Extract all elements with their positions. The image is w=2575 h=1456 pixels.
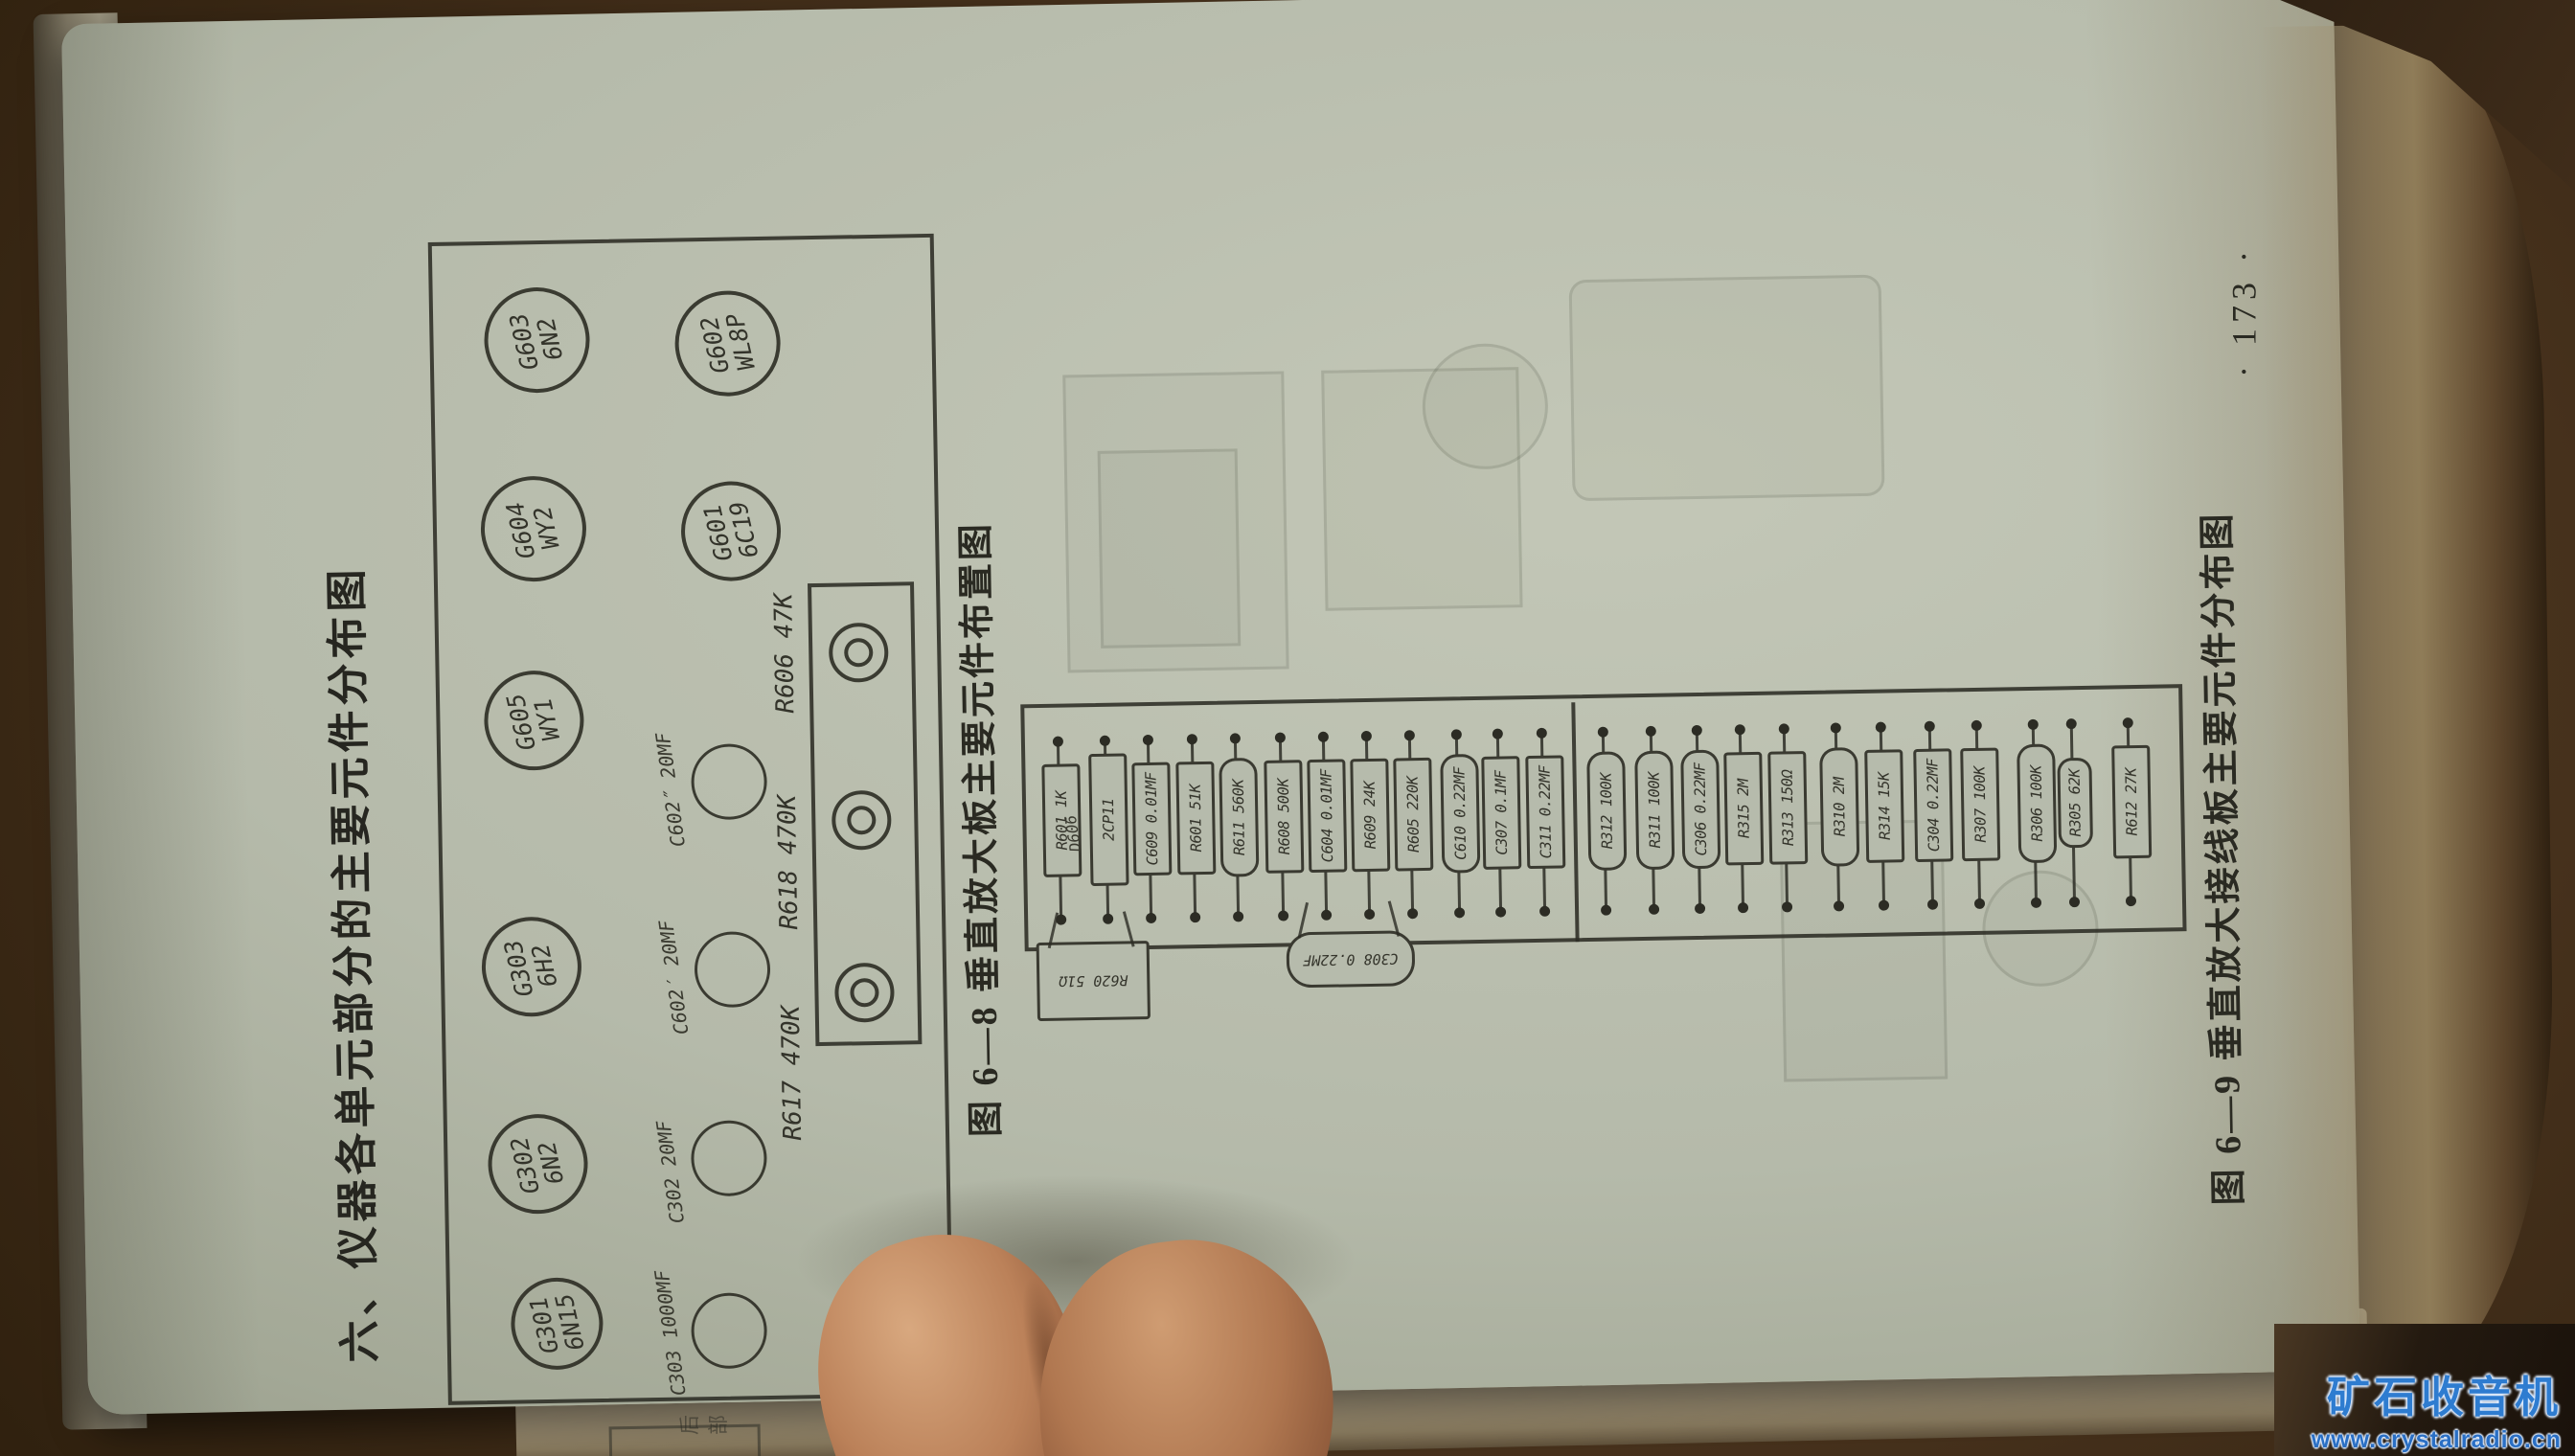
component-label: 2CP11 <box>1100 798 1118 840</box>
strip-component: R313 150Ω <box>1767 751 1808 865</box>
component-label: R312 100K <box>1598 773 1616 850</box>
component-label: C308 0.22MF <box>1303 949 1399 968</box>
component-label: R620 51Ω <box>1059 971 1128 990</box>
strip-component: R605 220K <box>1393 758 1433 872</box>
strip-component: R608 500K <box>1264 760 1304 874</box>
side-component: R620 51Ω <box>1037 941 1151 1021</box>
component-label: R612 27K <box>2123 768 2141 836</box>
page-number: · 173 · <box>2223 245 2264 377</box>
page-title: 六、仪器各单元部分的主要元件分布图 <box>312 564 388 1363</box>
bar-resistor-label: R618 470K <box>773 794 804 929</box>
component-label: R306 100K <box>2028 765 2046 842</box>
component-label: C304 0.22MF <box>1924 759 1943 852</box>
component-label: R601 51K <box>1187 785 1205 853</box>
component-label: R310 2M <box>1831 777 1849 836</box>
component-label: R608 500K <box>1275 779 1293 855</box>
strip-component: R612 27K <box>2111 745 2152 859</box>
watermark-site-url: www.crystalradio.cn <box>2312 1426 2562 1454</box>
strip-component: C609 0.01MF <box>1131 762 1172 876</box>
ghost-showthrough <box>1422 343 1549 470</box>
strip-component: C311 0.22MF <box>1525 755 1565 869</box>
strip-component: C604 0.01MF <box>1307 759 1347 873</box>
mount-hole-center <box>847 806 877 835</box>
component-label: R314 15K <box>1876 772 1894 840</box>
component-label: C307 0.1MF <box>1493 770 1512 855</box>
component-label: C306 0.22MF <box>1691 762 1710 855</box>
strip-component: R609 24K <box>1350 759 1390 873</box>
component-label: R605 220K <box>1404 776 1423 853</box>
strip-component: C610 0.22MF <box>1440 754 1480 874</box>
component-label: R609 24K <box>1361 781 1379 849</box>
mount-hole <box>833 963 894 1023</box>
component-label: R311 100K <box>1646 772 1664 849</box>
watermark-site-name: 矿石收音机 <box>2312 1362 2562 1424</box>
ghost-showthrough <box>1569 275 1885 502</box>
component-label: C604 0.01MF <box>1317 769 1336 862</box>
figure-6-9-caption: 图 6—9 垂直放大接线板主要元件分布图 <box>2187 511 2252 1206</box>
mount-hole-center <box>850 978 879 1008</box>
component-label: R315 2M <box>1735 779 1753 838</box>
component-label: R305 62K <box>2066 769 2085 837</box>
strip-component: R311 100K <box>1634 750 1675 870</box>
strip-component: R307 100K <box>1960 748 2000 862</box>
strip-component: R611 560K <box>1219 758 1259 877</box>
component-label: C311 0.22MF <box>1536 765 1555 858</box>
bar-resistor-label: R606 47K <box>769 593 800 714</box>
watermark: 矿石收音机 www.crystalradio.cn <box>2312 1362 2562 1454</box>
side-component: C308 0.22MF <box>1286 930 1415 988</box>
strip-component: C307 0.1MF <box>1481 756 1521 870</box>
figure-6-8-caption: 图 6—8 垂直放大板主要元件布置图 <box>946 521 1009 1138</box>
mount-hole <box>828 623 888 683</box>
strip-component: R310 2M <box>1819 747 1859 867</box>
strip-component: R305 62K <box>2057 758 2093 849</box>
next-page-fragment-text: 后部 <box>674 1406 741 1435</box>
component-label: C609 0.01MF <box>1143 772 1162 865</box>
component-label: R611 560K <box>1230 779 1248 855</box>
strip-component: C306 0.22MF <box>1680 750 1720 870</box>
ghost-showthrough <box>1098 448 1242 648</box>
strip-component: R312 100K <box>1586 751 1627 871</box>
strip-component: 2CP11 <box>1088 753 1128 886</box>
mount-hole-center <box>844 638 874 668</box>
strip-component: R601 51K <box>1175 762 1216 876</box>
component-label: C610 0.22MF <box>1450 767 1470 860</box>
strip-component: R306 100K <box>2017 743 2057 863</box>
bar-resistor-label: R617 470K <box>777 1005 808 1140</box>
strip-component: C304 0.22MF <box>1913 748 1953 862</box>
strip-component: R315 2M <box>1723 752 1764 866</box>
component-label: R313 150Ω <box>1779 769 1797 846</box>
component-label: R307 100K <box>1971 766 1990 843</box>
strip-component: R314 15K <box>1864 749 1904 863</box>
mount-hole <box>831 790 891 851</box>
photo-of-book-page: 六、仪器各单元部分的主要元件分布图 · 173 · 图 6—8 垂直放大板主要元… <box>0 0 2575 1456</box>
